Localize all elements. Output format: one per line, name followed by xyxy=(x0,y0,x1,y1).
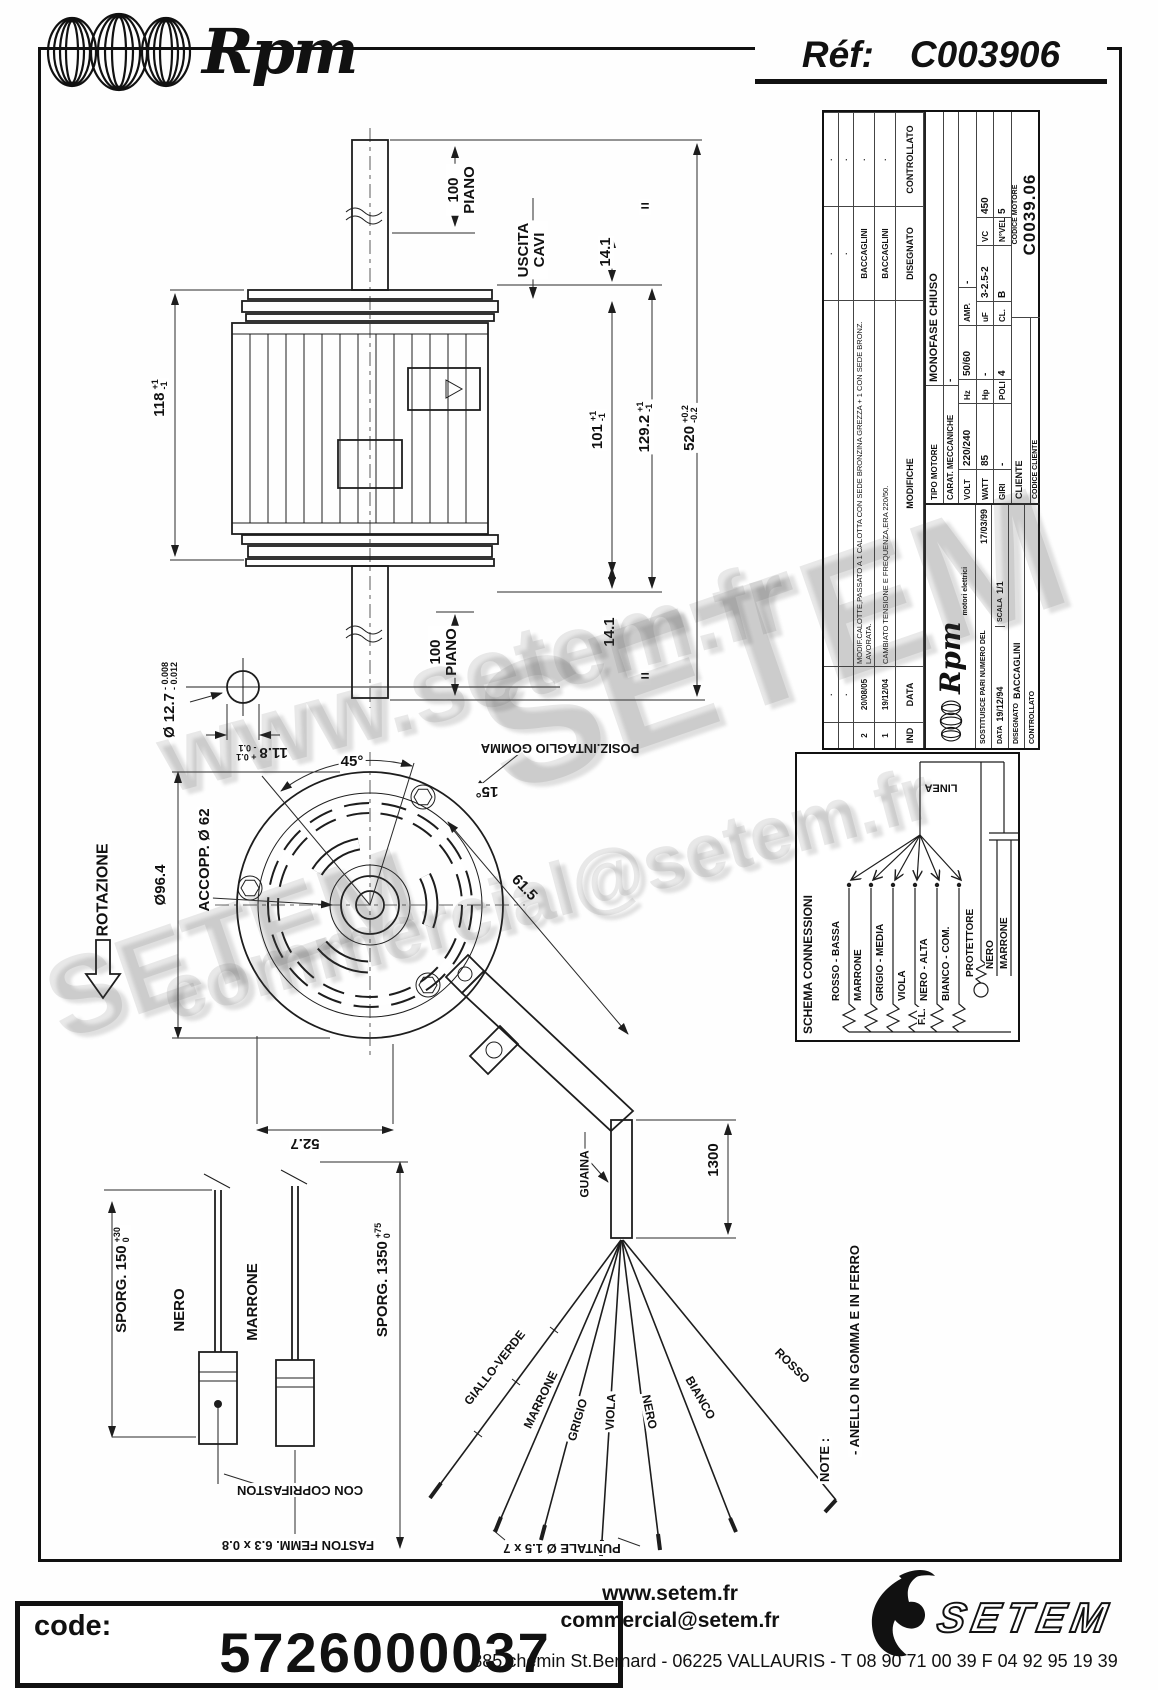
footer-email: commercial@setem.fr xyxy=(505,1609,835,1633)
dim-527: 52.7 xyxy=(288,1135,321,1151)
dim-520: 520+0.2-0.2 xyxy=(681,403,699,453)
modification-history-table: ··· ··· 220/08/05MODIF.CALOTTE,PASSATO A… xyxy=(824,112,926,748)
cable-exit-label: USCITACAVI xyxy=(516,221,548,280)
coprifaston-label: CON COPRIFASTON xyxy=(235,1483,365,1497)
dim-118b-flat: 11.8+ 0.1- 0.1 xyxy=(234,743,290,761)
setem-logo: SETEM xyxy=(855,1566,1125,1661)
rpm-header-logo: Rpm xyxy=(44,10,356,94)
rpm-coils-icon xyxy=(44,10,194,94)
dim-shaft-diameter: Ø 12.7- 0.008- 0.012 xyxy=(161,660,179,740)
lead-wire2-label: MARRONE xyxy=(245,1261,261,1343)
note-text: - ANELLO IN GOMMA E IN FERRO xyxy=(848,1243,862,1457)
schema-wire-nero-alta: NERO - ALTA xyxy=(919,937,930,1002)
code-label: code: xyxy=(34,1610,111,1643)
reference-box: Réf: C003906 xyxy=(755,34,1107,84)
dim-shaft-top-piano: 100PIANO xyxy=(446,164,478,216)
schema-wire-viola: VIOLA xyxy=(897,969,908,1002)
setem-swoosh-icon xyxy=(872,1571,925,1656)
rotation-label: ROTAZIONE xyxy=(94,841,111,938)
schema-marrone-label: MARRONE xyxy=(999,916,1010,970)
rpm-small-logo: Rpm motori elettrici xyxy=(926,505,976,748)
puntale-label: PUNTALE Ø 1.5 x 7 xyxy=(501,1541,623,1555)
dim-141-bottom: 14.1 xyxy=(602,615,618,648)
drawing-sheet: Rpm Réf: C003906 xyxy=(0,0,1158,1690)
schema-nero-label: NERO xyxy=(985,939,996,970)
schema-wire-rosso-bassa: ROSSO - BASSA xyxy=(831,920,842,1002)
equal-mark-bottom: = xyxy=(639,669,652,685)
title-block-specs: TIPO MOTOREMONOFASE CHIUSO CARAT. MECCAN… xyxy=(926,112,1040,503)
rpm-coils-small-icon xyxy=(936,700,966,742)
codice-motore-cell: CODICE MOTORE C0039.06 xyxy=(1012,112,1040,317)
equal-mark-top: = xyxy=(639,199,652,215)
dim-sporg-150: SPORG. 150+300 xyxy=(113,1225,131,1335)
connection-schema-box: SCHEMA CONNESSIONI ROSSO - BASSA MARRONE… xyxy=(795,752,1020,1042)
schema-protettore-label: PROTETTORE xyxy=(965,908,976,978)
dim-141-top: 14.1 xyxy=(598,235,614,268)
schema-fl-label: F.L. xyxy=(917,1007,928,1026)
lead-wire1-label: NERO xyxy=(172,1286,188,1333)
schema-title: SCHEMA CONNESSIONI xyxy=(801,895,815,1034)
ref-value: C003906 xyxy=(910,34,1060,76)
schema-wire-bianco-com: BIANCO - COM. xyxy=(941,926,952,1002)
angle-15-label: 15° xyxy=(474,783,501,799)
faston-label: FASTON FEMM. 6.3 x 0.8 xyxy=(220,1538,376,1552)
dim-outer-diameter: Ø96.4 xyxy=(153,863,169,908)
dim-sporg-1350: SPORG. 1350+750 xyxy=(374,1221,392,1339)
sheath-label: GUAINA xyxy=(579,1148,592,1199)
schema-linea-label: LINEA xyxy=(925,782,958,794)
dim-101: 101+1-1 xyxy=(589,409,607,451)
angle-45-label: 45° xyxy=(339,754,366,770)
footer-website: www.setem.fr xyxy=(530,1582,810,1606)
dim-118: 118+1-1 xyxy=(151,377,169,418)
ref-label: Réf: xyxy=(802,34,874,76)
splay-wire-viola: VIOLA xyxy=(603,1391,618,1432)
note-label: NOTE : xyxy=(818,1436,832,1484)
cliente-cell: CLIENTE CODICE CLIENTE xyxy=(1012,317,1040,503)
setem-brand-text: SETEM xyxy=(934,1594,1117,1641)
schema-wire-grigio-media: GRIGIO - MEDIA xyxy=(875,923,886,1002)
dim-1300: 1300 xyxy=(706,1141,722,1178)
dim-1292: 129.2+1-1 xyxy=(636,400,654,455)
title-block: ··· ··· 220/08/05MODIF.CALOTTE,PASSATO A… xyxy=(822,110,1040,750)
schema-wire-marrone: MARRONE xyxy=(853,948,864,1002)
title-block-left: Rpm motori elettrici SOSTITUISCE PARI NU… xyxy=(926,503,1040,748)
dim-shaft-bottom-piano: 100PIANO xyxy=(428,626,460,678)
coupling-diameter-label: ACCOPP. Ø 62 xyxy=(197,806,213,913)
rpm-brand-text: Rpm xyxy=(202,21,356,83)
rubber-notch-position-label: POSIZ.INTAGLIO GOMMA xyxy=(479,741,642,755)
